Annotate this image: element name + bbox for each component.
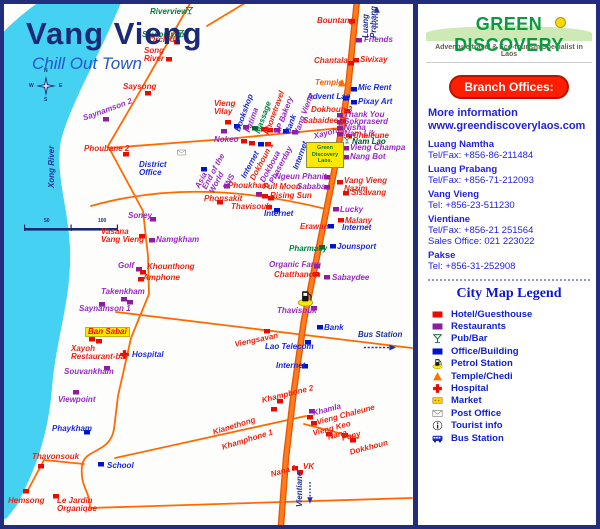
branch-office-entry: Vientiane Tel/Fax: +856-21 251564 Sales … <box>428 214 592 247</box>
map-label: VK <box>303 463 314 471</box>
legend-icon <box>430 408 445 419</box>
map-label: Le Jardin Organique <box>57 497 97 512</box>
legend-icon <box>430 321 445 332</box>
office-tel: Tel: +856-31-252908 <box>428 261 592 272</box>
dotted-divider <box>428 279 590 281</box>
city-map: RiverviewSaylomyenOrchidSong RiverSayson… <box>0 0 417 529</box>
legend-label: Restaurants <box>451 321 506 332</box>
legend-item: Restaurants <box>430 320 592 332</box>
office-name: Luang Namtha <box>428 139 592 150</box>
map-label: School <box>107 462 134 470</box>
map-label: Dokkhoun <box>349 439 389 456</box>
legend-label: Hotel/Guesthouse <box>451 309 532 320</box>
legend-item: Hospital <box>430 382 592 394</box>
legend-label: Pub/Bar <box>451 333 487 344</box>
map-label: Dokboua <box>259 150 282 184</box>
branch-office-entry: Luang Prabang Tel/Fax: +856-71-212093 <box>428 164 592 186</box>
map-label: Erawan <box>300 223 328 231</box>
office-tel: Tel/Fax: +856-86-211484 <box>428 150 592 161</box>
map-label: Lucky <box>340 206 363 214</box>
map-label: W <box>29 84 34 89</box>
map-label: TNS <box>222 173 236 191</box>
more-info-label: More information <box>428 107 592 120</box>
map-label: Bus Station <box>358 331 402 339</box>
office-tel: Tel/Fax: +856-21 251564 <box>428 225 592 236</box>
map-label: District Office <box>139 161 167 176</box>
map-label: Lao Telecom <box>265 343 314 351</box>
office-name: Pakse <box>428 250 592 261</box>
map-label: Organic Farm <box>269 261 321 269</box>
map-label: Takenkham <box>101 288 145 296</box>
branch-office-list: Luang Namtha Tel/Fax: +856-86-211484 Lua… <box>428 139 592 272</box>
map-label: Pany <box>341 430 361 442</box>
map-label: Chaleune <box>353 132 389 140</box>
branch-office-entry: Pakse Tel: +856-31-252908 <box>428 250 592 272</box>
office-tel-2: Sales Office: 021 223022 <box>428 236 592 247</box>
map-label: Internet <box>240 150 260 179</box>
map-label: Chantala <box>314 57 348 65</box>
map-label: Riverview <box>150 8 187 16</box>
map-label: S <box>44 98 47 103</box>
map-label: Kianethong <box>212 416 256 436</box>
legend-icon <box>430 383 445 394</box>
legend-icon <box>430 333 445 344</box>
map-label: Sabaidee 2 <box>303 117 345 125</box>
map-label: Nana 1 <box>270 464 297 478</box>
legend-title: City Map Legend <box>426 286 592 302</box>
map-label: Sabaydee <box>332 274 369 282</box>
map-label: Thavisouk <box>231 203 271 211</box>
map-label: Vang Vieng Nazim <box>344 177 387 192</box>
website-link[interactable]: www.greendiscoverylaos.com <box>428 120 585 132</box>
map-label: Khounthong <box>147 263 195 271</box>
legend-icon <box>430 309 445 320</box>
legend-icon <box>430 395 445 406</box>
legend-label: Office/Building <box>451 346 519 357</box>
branch-office-entry: Vang Vieng Tel: +856-23-511230 <box>428 189 592 211</box>
map-label: Internet <box>276 362 305 370</box>
map-label: Khamla <box>312 403 342 418</box>
map-label: Rising Sun <box>270 192 312 200</box>
map-label: Pharmacy <box>289 245 327 253</box>
map-label: Massage <box>254 100 273 134</box>
green-discovery-logo: GREEN DISCOVERY <box>426 8 592 44</box>
map-label: End of the World <box>201 152 233 194</box>
map-label: Nana <box>327 429 348 441</box>
screenshot-stage: RiverviewSaylomyenOrchidSong RiverSayson… <box>0 0 600 529</box>
map-title: Vang Vieng <box>26 16 203 52</box>
map-label: Temple <box>315 79 343 87</box>
map-label: Internet <box>264 210 293 218</box>
map-label: Friends <box>364 36 393 44</box>
office-tel: Tel/Fax: +856-71-212093 <box>428 175 592 186</box>
map-label: Jounsport <box>337 243 376 251</box>
map-label: Golf <box>118 262 134 270</box>
more-info-block: More information www.greendiscoverylaos.… <box>428 107 592 133</box>
legend-icon <box>430 358 445 369</box>
map-label: Nisha <box>344 124 366 132</box>
map-label: Saynamson 2 <box>82 97 133 122</box>
office-name: Vang Vieng <box>428 189 592 200</box>
legend-item: Bus Station <box>430 432 592 444</box>
map-label: Vieng Vilay <box>214 100 235 115</box>
map-label: Viewpoint <box>58 396 95 404</box>
map-label: Nang Bot <box>350 153 386 161</box>
legend-list: Hotel/Guesthouse Restaurants Pub/Bar <box>430 308 592 444</box>
map-label: Fatima <box>244 107 260 134</box>
map-label: Viengsavan <box>234 332 279 349</box>
map-label: Ban Sabai <box>85 327 130 337</box>
map-label: E <box>59 84 62 89</box>
map-label: Phonsakit <box>204 195 242 203</box>
legend-icon <box>430 346 445 357</box>
office-name: Luang Prabang <box>428 164 592 175</box>
map-label: Vieng Champa <box>350 144 405 152</box>
map-label: 100 <box>98 219 106 224</box>
map-label: Namgkham <box>156 236 199 244</box>
legend-icon <box>430 433 445 444</box>
legend-icon <box>430 420 445 431</box>
map-label: Advent Lao <box>307 93 351 101</box>
office-name: Vientiane <box>428 214 592 225</box>
map-label: Thank You <box>344 111 384 119</box>
map-label: Sababa <box>297 183 325 191</box>
map-label: Bookshop <box>234 93 254 132</box>
map-label: Vasana Vang Vieng <box>101 228 144 243</box>
map-label: Bank <box>324 324 344 332</box>
map-label: Thavonsouk <box>32 453 79 461</box>
map-label: Saysong <box>123 83 156 91</box>
panel-divider <box>413 0 418 529</box>
map-label: LP Bakery <box>274 95 294 134</box>
map-label: Amphone <box>143 274 180 282</box>
map-label: Sisavang <box>351 189 386 197</box>
map-label: Hemsong <box>8 497 44 505</box>
legend-label: Bus Station <box>451 433 504 444</box>
legend-icon <box>430 371 445 382</box>
map-label: Sokpraserd <box>344 118 388 126</box>
legend-item: Hotel/Guesthouse <box>430 308 592 320</box>
legend-label: Temple/Chedi <box>451 371 513 382</box>
legend-label: Hospital <box>451 383 488 394</box>
branch-office-entry: Luang Namtha Tel/Fax: +856-86-211484 <box>428 139 592 161</box>
map-label: Bank <box>284 114 298 135</box>
map-label: Asia <box>194 171 209 189</box>
map-label: Pixay Art <box>358 98 392 106</box>
map-label: Mic Rent <box>358 84 391 92</box>
map-label: Phaserday <box>268 145 294 184</box>
legend-item: Pub/Bar <box>430 333 592 345</box>
map-label: Nokeo <box>214 136 238 144</box>
map-label: Khamphone 2 <box>261 384 314 404</box>
legend-item: Market <box>430 395 592 407</box>
legend-label: Petrol Station <box>451 358 513 369</box>
map-label: Xayoh Restaurant-bar <box>71 345 128 360</box>
map-label: Dokhoun 1 <box>249 141 275 181</box>
map-label: 50 <box>44 219 50 224</box>
legend-item: Post Office <box>430 407 592 419</box>
map-label: Phonetravel <box>263 90 286 136</box>
map-label: Luang Prabang <box>362 6 377 38</box>
map-label: Vieng Keo <box>312 420 351 437</box>
map-label: Saynamson 1 <box>79 305 131 313</box>
legend-label: Post Office <box>451 408 501 419</box>
map-label: Phoukham <box>228 182 269 190</box>
map-label: Phaykham <box>52 425 92 433</box>
legend-item: Tourist info <box>430 420 592 432</box>
branch-offices-button[interactable]: Branch Offices: <box>449 75 568 99</box>
map-label: Sivixay <box>360 56 388 64</box>
map-label: Xong River <box>48 146 56 188</box>
legend-label: Tourist info <box>451 420 503 431</box>
map-label: Vientiane <box>296 472 304 507</box>
green-discovery-office-box: Green Discovery Laos. <box>306 142 344 168</box>
legend-item: Petrol Station <box>430 358 592 370</box>
map-label: Chatthanom <box>274 271 321 279</box>
map-label: Nam Lik <box>344 130 375 138</box>
legend-item: Temple/Chedi <box>430 370 592 382</box>
map-label: Xayoh <box>313 127 338 140</box>
legend-item: Office/Building <box>430 345 592 357</box>
map-label: Vang Vieng <box>293 93 315 136</box>
map-label: Malany <box>345 217 372 225</box>
map-label: Vieng Chaleune <box>316 404 376 427</box>
map-label: Ngeun Phanit <box>275 173 327 181</box>
logo-text: GREEN DISCOVERY <box>426 14 592 56</box>
map-subtitle: Chill Out Town <box>32 54 142 74</box>
map-label: Hospital <box>132 351 164 359</box>
map-label: Phoubane 2 <box>84 145 129 153</box>
map-label: Souvankham <box>64 368 114 376</box>
sidebar-panel: GREEN DISCOVERY Adventure travel & Eco-t… <box>418 0 600 529</box>
map-label: Khamphone 1 <box>221 429 274 452</box>
office-tel: Tel: +856-23-511230 <box>428 200 592 211</box>
map-label: Nam Lao <box>352 138 386 146</box>
map-label: Bountang <box>317 17 354 25</box>
map-label: Soney <box>128 212 152 220</box>
map-label: Full Moon <box>263 183 301 191</box>
map-label: Thavisouk <box>277 307 317 315</box>
map-labels-layer: RiverviewSaylomyenOrchidSong RiverSayson… <box>0 0 417 529</box>
map-label: Internet <box>342 224 371 232</box>
legend-label: Market <box>451 395 482 406</box>
map-label: Dokhoun 3 <box>311 106 352 114</box>
